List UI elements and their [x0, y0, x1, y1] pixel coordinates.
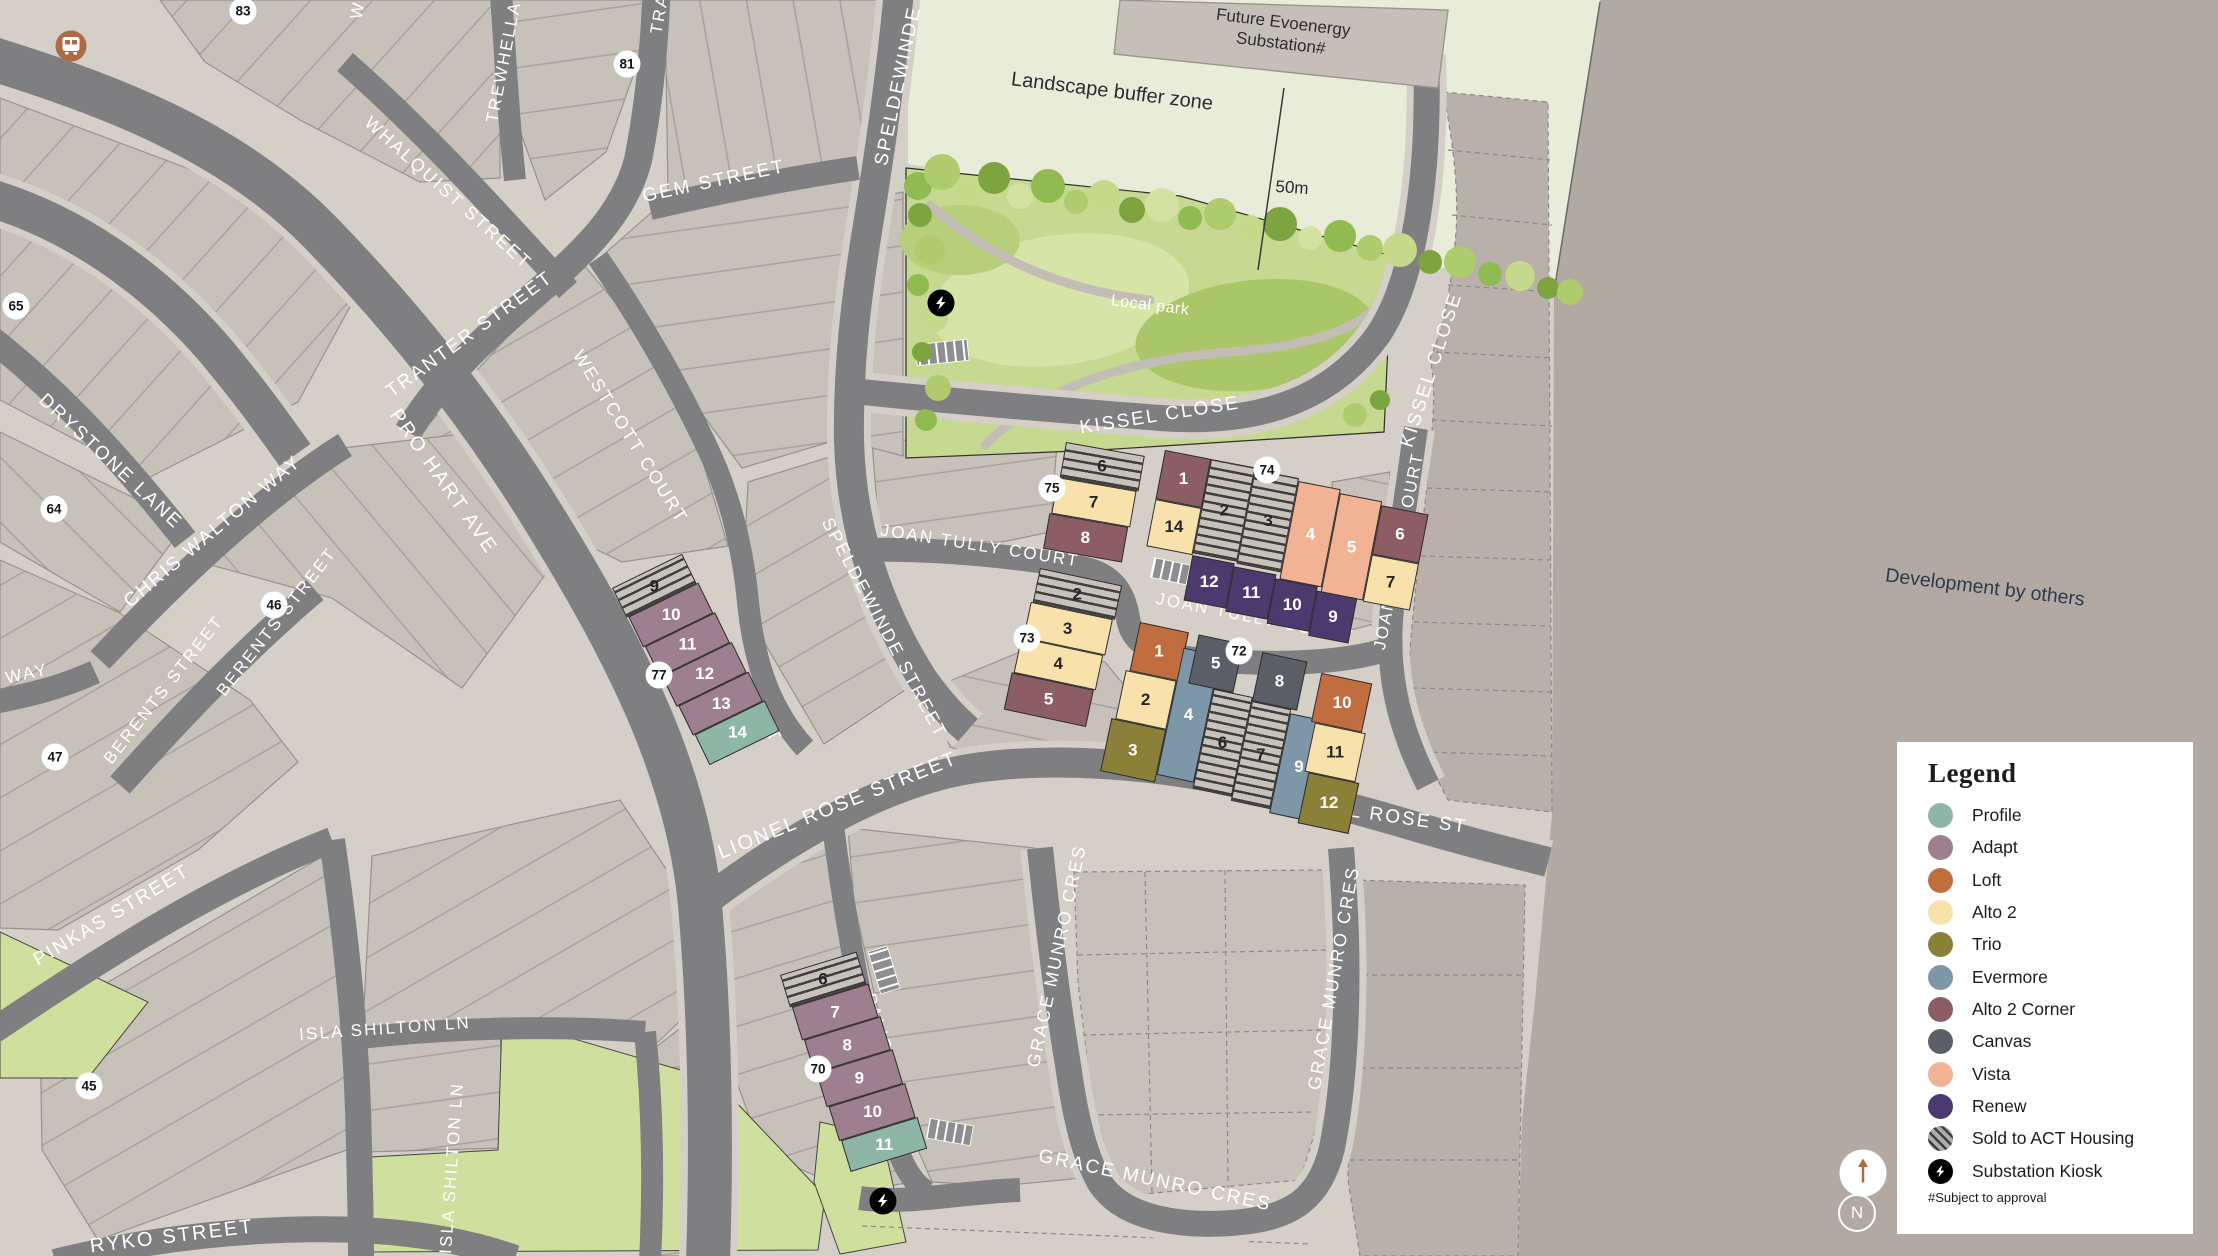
loft-swatch: [1928, 868, 1953, 893]
marker-64[interactable]: 64: [41, 496, 68, 523]
act-housing-swatch: [1928, 1126, 1953, 1151]
up-arrow-icon: [1840, 1150, 1887, 1197]
legend-item-adapt: Adapt: [1928, 834, 2018, 860]
lot-12[interactable]: 12: [1298, 772, 1360, 834]
legend-item-vista: Vista: [1928, 1061, 2011, 1087]
legend-panel: Legend Profile Adapt Loft Alto 2 Trio Ev…: [1897, 742, 2193, 1234]
legend-item-alto2: Alto 2: [1928, 899, 2017, 925]
substation-kiosk-swatch: [1928, 1159, 1953, 1184]
alto2-corner-swatch: [1928, 997, 1953, 1022]
legend-item-canvas: Canvas: [1928, 1028, 2031, 1054]
substation-kiosk-icon-south: [870, 1188, 897, 1215]
lot-9[interactable]: 9: [1308, 591, 1357, 644]
trio-swatch: [1928, 932, 1953, 957]
legend-item-profile: Profile: [1928, 802, 2022, 828]
dimension-label: 50m: [1275, 177, 1309, 199]
lightning-bolt-icon: [1934, 1165, 1947, 1178]
lightning-bolt-icon: [934, 296, 949, 311]
legend-item-renew: Renew: [1928, 1093, 2026, 1119]
north-letter: N: [1851, 1203, 1863, 1223]
bus-stop-icon: [56, 31, 87, 62]
marker-45[interactable]: 45: [76, 1073, 103, 1100]
marker-77[interactable]: 77: [646, 662, 673, 689]
legend-footnote: #Subject to approval: [1928, 1190, 2047, 1205]
north-indicator: N: [1838, 1194, 1876, 1232]
marker-65[interactable]: 65: [3, 293, 30, 320]
marker-47[interactable]: 47: [42, 744, 69, 771]
legend-item-substation-kiosk: Substation Kiosk: [1928, 1158, 2102, 1184]
lot-6[interactable]: 6: [1372, 505, 1429, 563]
street-label-w-fragment: W: [347, 0, 370, 21]
legend-item-alto2-corner: Alto 2 Corner: [1928, 996, 2075, 1022]
marker-46[interactable]: 46: [261, 592, 288, 619]
bus-glyph: [56, 31, 87, 62]
marker-73[interactable]: 73: [1014, 625, 1041, 652]
legend-title: Legend: [1928, 758, 2017, 789]
lot-7[interactable]: 7: [1363, 554, 1419, 610]
substation-kiosk-icon-park: [928, 290, 955, 317]
marker-75[interactable]: 75: [1039, 475, 1066, 502]
marker-70[interactable]: 70: [805, 1056, 832, 1083]
canvas-swatch: [1928, 1029, 1953, 1054]
grace-munro-block: [1074, 870, 1330, 1196]
marker-81[interactable]: 81: [614, 51, 641, 78]
vista-swatch: [1928, 1062, 1953, 1087]
evermore-swatch: [1928, 965, 1953, 990]
arrow-glyph: [1840, 1150, 1887, 1197]
legend-item-act-housing: Sold to ACT Housing: [1928, 1125, 2134, 1151]
alto2-swatch: [1928, 900, 1953, 925]
adapt-swatch: [1928, 835, 1953, 860]
renew-swatch: [1928, 1094, 1953, 1119]
legend-item-trio: Trio: [1928, 931, 2002, 957]
lightning-bolt-icon: [876, 1194, 891, 1209]
legend-item-loft: Loft: [1928, 867, 2001, 893]
masterplan-map: GEM STREET SPELDEWINDE S TREWHELLA WHALQ…: [0, 0, 2218, 1256]
legend-item-evermore: Evermore: [1928, 964, 2048, 990]
profile-swatch: [1928, 803, 1953, 828]
marker-74[interactable]: 74: [1254, 457, 1281, 484]
marker-72[interactable]: 72: [1226, 638, 1253, 665]
